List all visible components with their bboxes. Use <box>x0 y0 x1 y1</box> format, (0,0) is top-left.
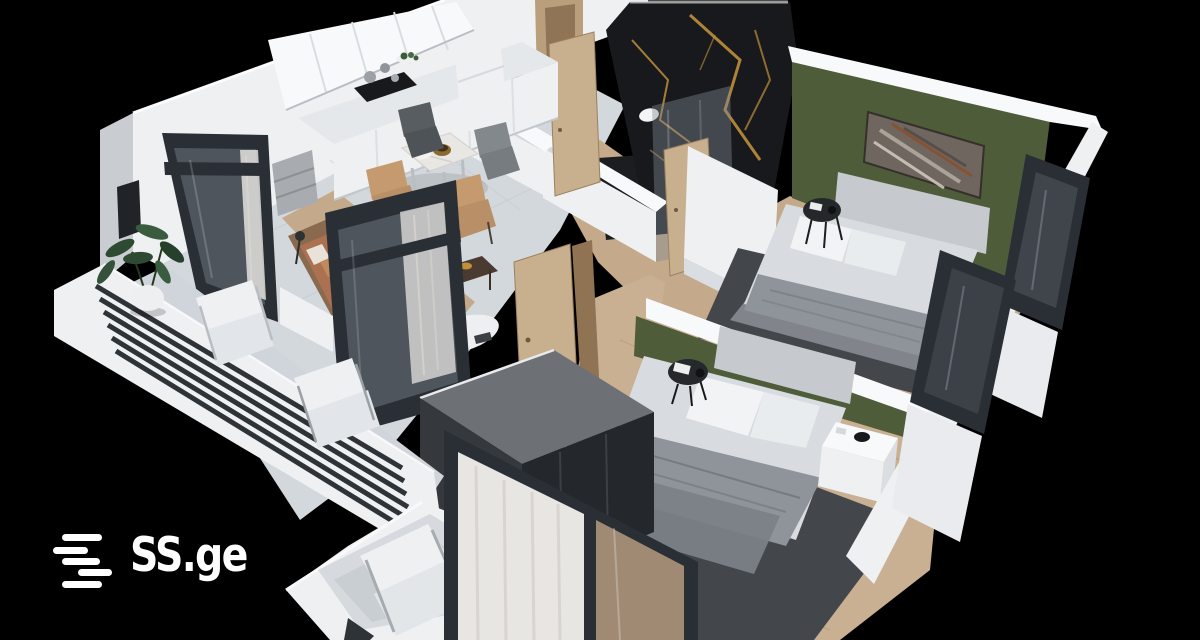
logo-bar <box>62 534 102 541</box>
apartment-3d-floor-plan-render: SS.ge <box>0 0 1200 640</box>
logo-bar <box>62 558 100 565</box>
logo-bar <box>62 581 102 588</box>
ss-ge-watermark: SS.ge <box>52 524 269 588</box>
logo-bar <box>78 569 112 576</box>
ss-ge-logo-text: SS.ge <box>130 524 247 588</box>
ss-ge-logo-icon <box>52 524 116 588</box>
logo-bar <box>53 547 88 554</box>
